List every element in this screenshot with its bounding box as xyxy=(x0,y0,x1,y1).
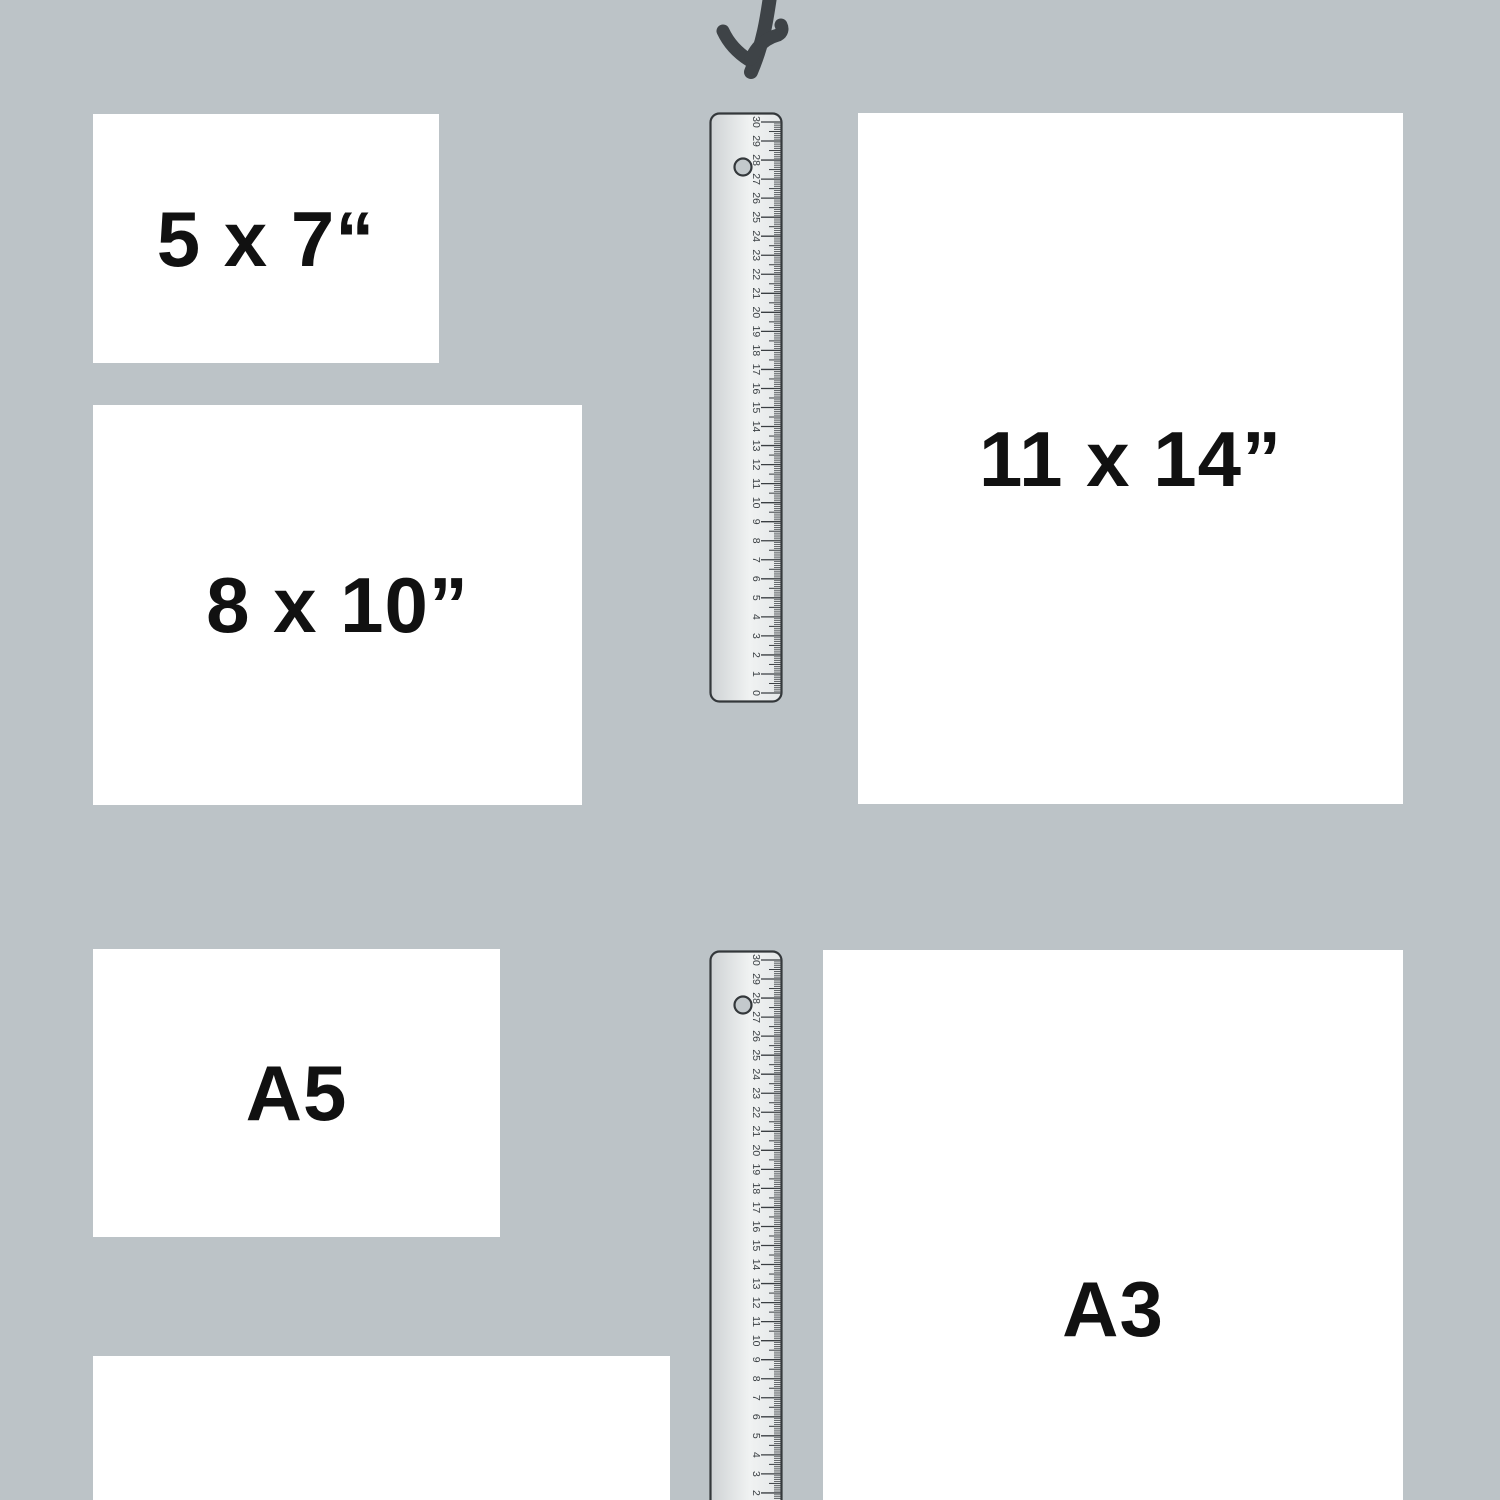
ruler-hanging-hole xyxy=(735,159,752,176)
sheet-a5: A5 xyxy=(93,949,500,1237)
ruler-cm-number: 17 xyxy=(750,364,762,376)
ruler-cm-number: 15 xyxy=(750,1240,762,1252)
ruler-cm-number: 26 xyxy=(750,192,762,204)
ruler-cm-number: 29 xyxy=(750,135,762,147)
sheet-a4-partial xyxy=(93,1356,670,1500)
ruler-cm-number: 21 xyxy=(750,287,762,299)
sheet-5x7: 5 x 7“ xyxy=(93,114,439,363)
ruler-cm-number: 9 xyxy=(750,1357,762,1363)
ruler-cm-number: 8 xyxy=(750,1376,762,1382)
ruler-cm-number: 29 xyxy=(750,973,762,985)
ruler-cm-number: 26 xyxy=(750,1030,762,1042)
ruler-top: 0123456789101112131415161718192021222324… xyxy=(709,112,783,703)
ruler-cm-number: 5 xyxy=(750,1433,762,1439)
ruler-cm-number: 5 xyxy=(750,595,762,601)
ruler-cm-number: 19 xyxy=(750,326,762,338)
ruler-cm-number: 21 xyxy=(750,1125,762,1137)
ruler-cm-number: 8 xyxy=(750,538,762,544)
curved-arrow-icon xyxy=(660,0,880,110)
ruler-cm-number: 10 xyxy=(750,497,762,509)
sheet-11x14: 11 x 14” xyxy=(858,113,1403,804)
ruler-cm-number: 22 xyxy=(750,268,762,280)
sheet-a3-label: A3 xyxy=(823,1270,1403,1348)
ruler-cm-number: 18 xyxy=(750,345,762,357)
ruler-cm-number: 11 xyxy=(750,1316,762,1327)
ruler-cm-number: 14 xyxy=(750,421,762,433)
ruler-cm-number: 17 xyxy=(750,1202,762,1214)
ruler-cm-number: 20 xyxy=(750,306,762,318)
ruler-cm-number: 25 xyxy=(750,211,762,223)
print-size-comparison-canvas: 5 x 7“ 8 x 10” 11 x 14” A5 A3 0123456789… xyxy=(0,0,1500,1500)
ruler-cm-number: 22 xyxy=(750,1106,762,1118)
ruler-cm-number: 10 xyxy=(750,1335,762,1347)
ruler-cm-number: 2 xyxy=(750,1490,762,1496)
ruler-cm-number: 28 xyxy=(750,154,762,166)
sheet-8x10: 8 x 10” xyxy=(93,405,582,805)
sheet-a3: A3 xyxy=(823,950,1403,1500)
ruler-cm-number: 28 xyxy=(750,992,762,1004)
sheet-a5-label: A5 xyxy=(246,1054,348,1132)
ruler-cm-number: 4 xyxy=(750,1452,762,1458)
ruler-cm-number: 20 xyxy=(750,1144,762,1156)
ruler-cm-number: 12 xyxy=(750,1297,762,1309)
ruler-cm-number: 0 xyxy=(750,690,762,696)
ruler-cm-number: 4 xyxy=(750,614,762,620)
ruler-cm-number: 6 xyxy=(750,1414,762,1420)
ruler-cm-number: 27 xyxy=(750,1011,762,1023)
ruler-hanging-hole xyxy=(735,997,752,1014)
ruler-cm-number: 6 xyxy=(750,576,762,582)
sheet-11x14-label: 11 x 14” xyxy=(979,420,1282,498)
ruler-cm-number: 1 xyxy=(750,671,762,677)
ruler-cm-number: 18 xyxy=(750,1183,762,1195)
ruler-cm-number: 23 xyxy=(750,249,762,261)
ruler-bottom: 0123456789101112131415161718192021222324… xyxy=(709,950,783,1500)
ruler-body xyxy=(711,952,782,1500)
ruler-cm-number: 30 xyxy=(750,116,762,128)
ruler-cm-number: 12 xyxy=(750,459,762,471)
ruler-cm-number: 9 xyxy=(750,519,762,525)
ruler-cm-number: 27 xyxy=(750,173,762,185)
ruler-cm-number: 14 xyxy=(750,1259,762,1271)
ruler-cm-number: 25 xyxy=(750,1049,762,1061)
ruler-cm-number: 24 xyxy=(750,1068,762,1080)
sheet-5x7-label: 5 x 7“ xyxy=(157,200,375,278)
ruler-cm-number: 13 xyxy=(750,440,762,452)
ruler-cm-number: 2 xyxy=(750,652,762,658)
ruler-cm-number: 15 xyxy=(750,402,762,414)
ruler-cm-number: 7 xyxy=(750,557,762,563)
ruler-cm-number: 30 xyxy=(750,954,762,966)
sheet-8x10-label: 8 x 10” xyxy=(206,566,469,644)
ruler-cm-number: 16 xyxy=(750,1221,762,1233)
ruler-cm-number: 19 xyxy=(750,1164,762,1176)
ruler-cm-number: 23 xyxy=(750,1087,762,1099)
ruler-cm-number: 24 xyxy=(750,230,762,242)
ruler-cm-number: 11 xyxy=(750,478,762,489)
ruler-cm-number: 3 xyxy=(750,633,762,639)
ruler-cm-number: 13 xyxy=(750,1278,762,1290)
ruler-cm-number: 16 xyxy=(750,383,762,395)
ruler-cm-number: 7 xyxy=(750,1395,762,1401)
ruler-cm-number: 3 xyxy=(750,1471,762,1477)
